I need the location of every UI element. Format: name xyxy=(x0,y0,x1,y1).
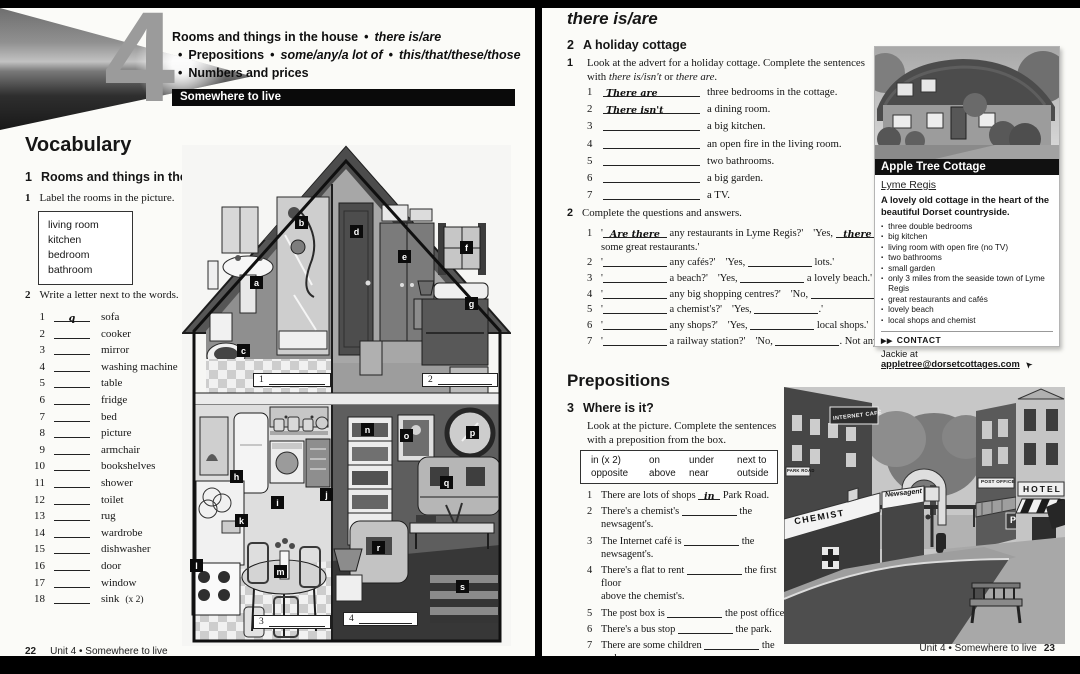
advert-bullet: ▪local shops and chemist xyxy=(881,316,1053,326)
item-tag: s xyxy=(456,580,469,593)
answer-blank[interactable] xyxy=(54,477,90,488)
advert-title: Apple Tree Cottage xyxy=(875,159,1059,175)
advert-tagline: A lovely old cottage in the heart of the… xyxy=(881,195,1053,218)
answer-blank[interactable] xyxy=(54,510,90,521)
answer-blank[interactable] xyxy=(54,361,90,372)
item-tag: h xyxy=(230,470,243,483)
word-row: 1qsofa xyxy=(27,311,178,328)
answer-blank[interactable] xyxy=(603,172,700,183)
room-label-slot[interactable]: 2 xyxy=(422,373,498,387)
answer-blank[interactable] xyxy=(603,272,667,283)
preposition-option: above xyxy=(649,468,689,479)
answer-blank[interactable] xyxy=(748,256,812,267)
answer-blank[interactable] xyxy=(54,328,90,339)
word-box-item: bathroom xyxy=(48,263,132,278)
sentence-row: 4an open fire in the living room. xyxy=(587,138,842,155)
parking-sign: P xyxy=(1010,515,1016,525)
double-arrow-icon: ▶▶ xyxy=(881,338,893,345)
sentence-row: 1There are lots of shops in Park Road. xyxy=(587,489,797,502)
preposition-option: on xyxy=(649,455,689,466)
advert-bullet: ▪small garden xyxy=(881,264,1053,274)
answer-blank[interactable] xyxy=(54,494,90,505)
answer-blank[interactable] xyxy=(54,444,90,455)
item-tag: i xyxy=(271,496,284,509)
word-row: 8picture xyxy=(27,427,178,444)
answer-blank[interactable] xyxy=(54,527,90,538)
item-tag: q xyxy=(440,476,453,489)
square-bullet-icon: ▪ xyxy=(881,243,883,253)
sentence-row: 5The post box is the post office. xyxy=(587,607,797,620)
word-row: 4washing machine xyxy=(27,361,178,378)
sentence-row: 3The Internet café is the newsagent's. xyxy=(587,535,797,561)
room-label-slot[interactable]: 1 xyxy=(253,373,331,387)
item-tag: c xyxy=(237,344,250,357)
house-drawing xyxy=(182,145,511,646)
item-tag: p xyxy=(466,426,479,439)
answer-blank[interactable] xyxy=(54,427,90,438)
item-tag: j xyxy=(320,488,333,501)
square-bullet-icon: ▪ xyxy=(881,232,883,242)
room-word-box: living room kitchen bedroom bathroom xyxy=(38,211,133,285)
answer-blank[interactable]: There are xyxy=(603,86,700,97)
unit-title-banner: Somewhere to live xyxy=(172,89,515,106)
qa-row: 1'Are there any restaurants in Lyme Regi… xyxy=(587,227,923,254)
answer-blank[interactable] xyxy=(603,155,700,166)
questions-answers: 1'Are there any restaurants in Lyme Regi… xyxy=(587,227,923,350)
vocabulary-heading: Vocabulary xyxy=(25,134,131,157)
answer-blank[interactable] xyxy=(775,335,839,346)
item-tag: g xyxy=(465,297,478,310)
advert-bullet: ▪two bathrooms xyxy=(881,253,1053,263)
item-tag: k xyxy=(235,514,248,527)
qa-row: 4' any big shopping centres?''No, .' xyxy=(587,288,923,302)
section-3-heading: 3Where is it? xyxy=(567,401,654,415)
answer-blank[interactable] xyxy=(704,639,759,650)
answer-blank[interactable] xyxy=(54,560,90,571)
square-bullet-icon: ▪ xyxy=(881,274,883,295)
qa-row: 2' any cafés?''Yes, lots.' xyxy=(587,256,923,270)
advert-location: Lyme Regis xyxy=(881,179,1053,191)
room-label-slot[interactable]: 4 xyxy=(343,612,418,626)
answer-blank[interactable]: Are there xyxy=(603,227,667,238)
square-bullet-icon: ▪ xyxy=(881,295,883,305)
answer-blank[interactable] xyxy=(603,303,667,314)
word-row: 13rug xyxy=(27,510,178,527)
answer-blank[interactable] xyxy=(603,189,700,200)
item-tag: n xyxy=(361,423,374,436)
sentence-row: 1There arethree bedrooms in the cottage. xyxy=(587,86,842,103)
letterbox-top xyxy=(0,0,1080,8)
post-office-sign: POST OFFICE xyxy=(981,479,1015,484)
word-box-item: bedroom xyxy=(48,248,132,263)
answer-blank[interactable] xyxy=(603,288,667,299)
exercise-1-instruction: 1 Look at the advert for a holiday cotta… xyxy=(587,57,887,84)
square-bullet-icon: ▪ xyxy=(881,222,883,232)
sentence-row: 6a big garden. xyxy=(587,172,842,189)
sentence-row: 7a TV. xyxy=(587,189,842,206)
unit-number: 4 xyxy=(104,0,175,122)
book-spread: 4 Rooms and things in the house•there is… xyxy=(0,0,1080,674)
word-row: 11shower xyxy=(27,477,178,494)
room-label-slot[interactable]: 3 xyxy=(253,615,331,629)
park-road-sign: PARK ROAD xyxy=(787,468,815,473)
answer-blank[interactable] xyxy=(603,319,667,330)
answer-blank[interactable] xyxy=(603,335,667,346)
answer-blank[interactable]: in xyxy=(698,489,720,500)
sentence-row: 5two bathrooms. xyxy=(587,155,842,172)
advert-body: Lyme Regis A lovely old cottage in the h… xyxy=(875,175,1059,374)
answer-blank[interactable] xyxy=(54,394,90,405)
grammar-heading: there is/are xyxy=(567,9,658,29)
qa-row: 5' a chemist's?''Yes, .' xyxy=(587,303,923,317)
word-row: 2cooker xyxy=(27,328,178,345)
answer-blank[interactable]: q xyxy=(54,311,90,322)
exercise-1-instruction: 1Label the rooms in the picture. xyxy=(25,192,175,204)
answer-blank[interactable] xyxy=(54,593,90,604)
cottage-advert: Apple Tree Cottage Lyme Regis A lovely o… xyxy=(874,46,1060,347)
advert-bullet: ▪great restaurants and cafés xyxy=(881,295,1053,305)
square-bullet-icon: ▪ xyxy=(881,264,883,274)
preposition-option: next to xyxy=(737,455,783,466)
word-row: 18sink(x 2) xyxy=(27,593,178,610)
word-row: 12toilet xyxy=(27,494,178,511)
word-row: 7bed xyxy=(27,411,178,428)
answer-blank[interactable] xyxy=(754,303,818,314)
preposition-option: outside xyxy=(737,468,783,479)
answer-blank[interactable] xyxy=(740,272,804,283)
advert-bullet: ▪lovely beach xyxy=(881,305,1053,315)
item-tag: o xyxy=(400,429,413,442)
answer-blank[interactable] xyxy=(54,377,90,388)
answer-blank[interactable] xyxy=(603,138,700,149)
left-page: 4 Rooms and things in the house•there is… xyxy=(0,8,535,656)
answer-blank[interactable] xyxy=(682,505,737,516)
preposition-option: in (x 2) xyxy=(591,455,649,466)
word-row: 10bookshelves xyxy=(27,460,178,477)
answer-blank[interactable] xyxy=(750,319,814,330)
word-box-item: living room xyxy=(48,218,132,233)
item-tag: m xyxy=(274,565,287,578)
answer-blank[interactable] xyxy=(54,344,90,355)
hotel-sign: HOTEL xyxy=(1023,484,1062,494)
square-bullet-icon: ▪ xyxy=(881,305,883,315)
answer-blank[interactable] xyxy=(54,460,90,471)
advert-bullet: ▪living room with open fire (no TV) xyxy=(881,243,1053,253)
square-bullet-icon: ▪ xyxy=(881,253,883,263)
section-2-heading: 2A holiday cottage xyxy=(567,38,687,52)
email-link[interactable]: appletree@dorsetcottages.com xyxy=(881,359,1020,369)
contact-heading: ▶▶CONTACT xyxy=(881,331,1053,345)
word-row: 9armchair xyxy=(27,444,178,461)
preposition-option: under xyxy=(689,455,737,466)
topic-line-2: •Prepositions•some/any/a lot of•this/tha… xyxy=(172,46,532,64)
letterbox-bottom xyxy=(0,656,1080,674)
sentence-row: 4There's a flat to rent the first floora… xyxy=(587,564,797,603)
word-row: 15dishwasher xyxy=(27,543,178,560)
word-row: 3mirror xyxy=(27,344,178,361)
advert-bullet: ▪three double bedrooms xyxy=(881,222,1053,232)
word-row: 17window xyxy=(27,577,178,594)
advert-bullet: ▪only 3 miles from the seaside town of L… xyxy=(881,274,1053,295)
answer-blank[interactable] xyxy=(667,607,722,618)
answer-blank[interactable] xyxy=(603,120,700,131)
street-scene: CHEMIST Newsagent INTERNET CAFÉ PARK ROA… xyxy=(784,387,1065,644)
answer-blank[interactable] xyxy=(54,543,90,554)
qa-row: 3' a beach?''Yes, a lovely beach.' xyxy=(587,272,923,286)
house-illustration: a b c d e f g h i j k l m n o p q r s 1 … xyxy=(182,145,511,646)
exercise-2-instruction: 2Write a letter next to the words. xyxy=(25,289,179,301)
answer-blank[interactable] xyxy=(54,577,90,588)
right-footer: Unit 4 • Somewhere to live23 xyxy=(919,643,1062,654)
sentence-row: 2There isn'ta dining room. xyxy=(587,103,842,120)
right-page: there is/are 2A holiday cottage 1 Look a… xyxy=(542,8,1080,656)
qa-row: 6' any shops?''Yes, local shops.' xyxy=(587,319,923,333)
topic-line-1: Rooms and things in the house•there is/a… xyxy=(172,28,532,46)
answer-blank[interactable] xyxy=(603,256,667,267)
sentence-row: 2There's a chemist's the newsagent's. xyxy=(587,505,797,531)
word-box-item: kitchen xyxy=(48,233,132,248)
answer-blank[interactable] xyxy=(54,411,90,422)
cursor-icon: ➤ xyxy=(1022,358,1035,371)
item-tag: l xyxy=(190,559,203,572)
item-tag: r xyxy=(372,541,385,554)
preposition-option: near xyxy=(689,468,737,479)
word-list: 1qsofa 2cooker 3mirror 4washing machine … xyxy=(27,311,178,610)
advert-bullets: ▪three double bedrooms ▪big kitchen ▪liv… xyxy=(881,222,1053,326)
answer-blank[interactable]: There isn't xyxy=(603,103,700,114)
square-bullet-icon: ▪ xyxy=(881,316,883,326)
contact-line: Jackie at appletree@dorsetcottages.com➤ xyxy=(881,349,1053,370)
sentence-row: 6There's a bus stop the park. xyxy=(587,623,797,636)
answer-blank[interactable] xyxy=(678,623,733,634)
preposition-option: opposite xyxy=(591,468,649,479)
word-row: 14wardrobe xyxy=(27,527,178,544)
cottage-sentences: 1There arethree bedrooms in the cottage.… xyxy=(587,86,842,206)
item-tag: f xyxy=(460,241,473,254)
item-tag: e xyxy=(398,250,411,263)
word-row: 6fridge xyxy=(27,394,178,411)
exercise-2-instruction: 2Complete the questions and answers. xyxy=(567,207,742,221)
cottage-photo xyxy=(875,47,1059,159)
advert-bullet: ▪big kitchen xyxy=(881,232,1053,242)
item-tag: b xyxy=(295,216,308,229)
answer-blank[interactable] xyxy=(684,535,739,546)
item-tag: d xyxy=(350,225,363,238)
prepositions-heading: Prepositions xyxy=(567,371,670,391)
preposition-sentences: 1There are lots of shops in Park Road. 2… xyxy=(587,489,797,674)
qa-row: 7' a railway station?''No, . Not any mor… xyxy=(587,335,923,349)
answer-blank[interactable] xyxy=(811,288,875,299)
word-row: 16door xyxy=(27,560,178,577)
item-tag: a xyxy=(250,276,263,289)
preposition-word-box: in (x 2) on under next to opposite above… xyxy=(580,450,778,484)
answer-blank[interactable] xyxy=(687,564,742,575)
sentence-row: 3a big kitchen. xyxy=(587,120,842,137)
topic-line-3: •Numbers and prices xyxy=(172,64,532,82)
unit-topics: Rooms and things in the house•there is/a… xyxy=(172,28,532,82)
word-row: 5table xyxy=(27,377,178,394)
